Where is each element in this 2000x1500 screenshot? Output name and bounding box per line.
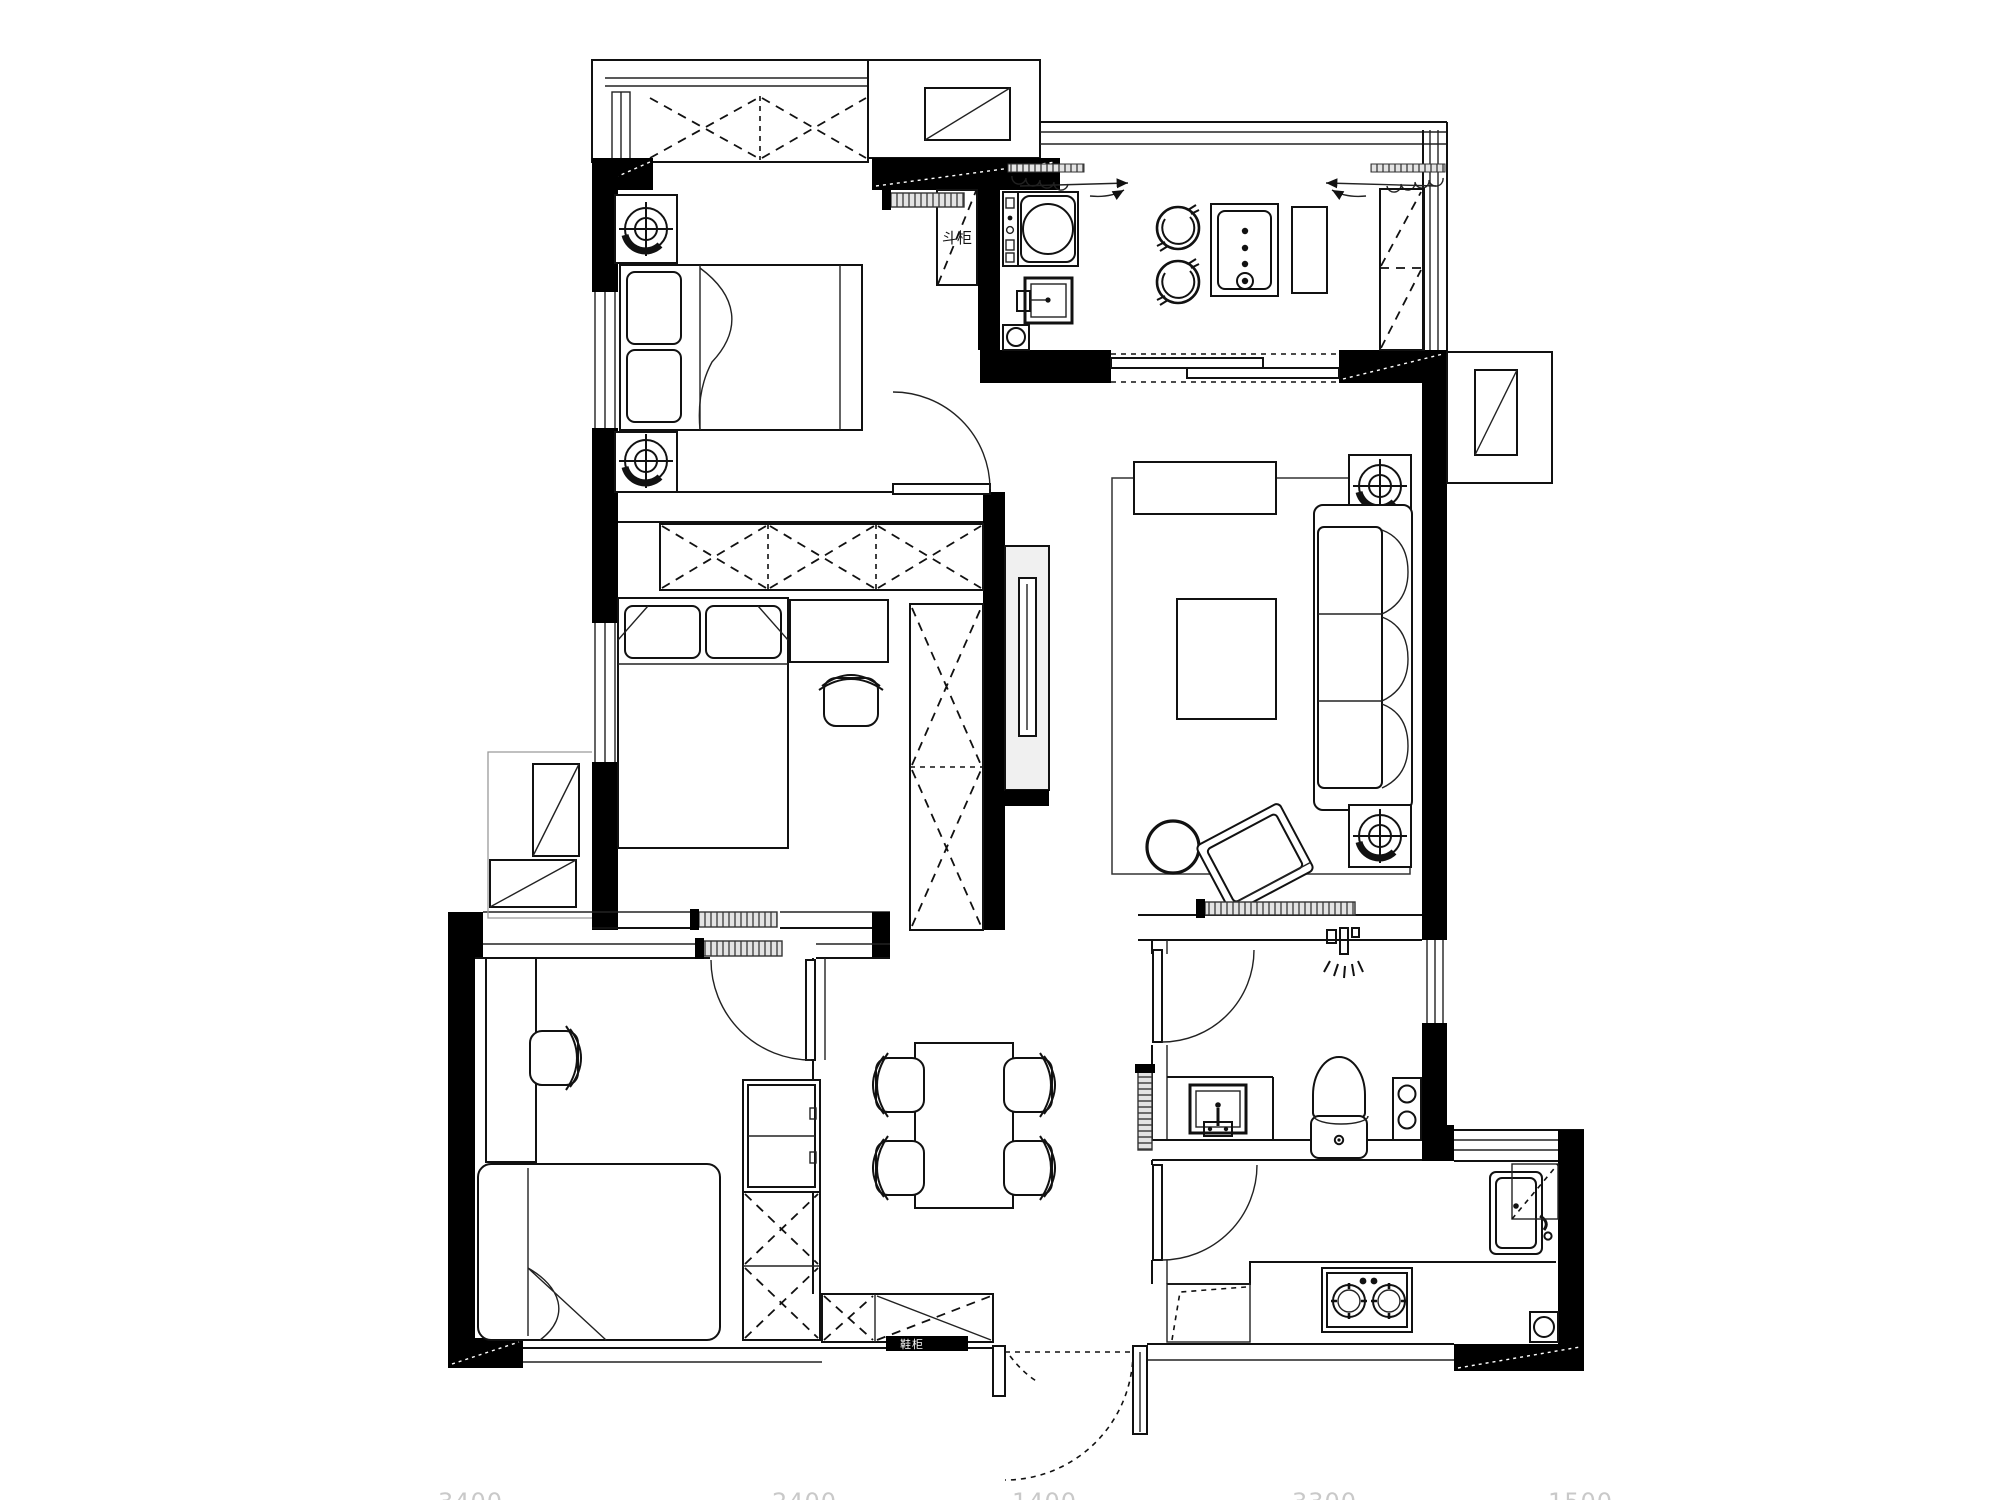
tv-console [1134, 462, 1276, 514]
pot-2 [1157, 259, 1199, 305]
bedroom2-sliding-door [690, 909, 782, 959]
dining-area [873, 899, 1355, 1208]
dim-3: 1400 [1012, 1488, 1077, 1500]
nightstand-north [615, 195, 677, 263]
bedroom2-side-wardrobe [910, 604, 983, 930]
floor-drain-balcony [1003, 325, 1029, 350]
shoe-cabinet: 鞋柜 [822, 1294, 993, 1351]
nightstand-south [615, 432, 677, 492]
single-bed [478, 1164, 720, 1340]
wall-corridor [983, 590, 1005, 930]
bed2-double-bed [618, 598, 788, 848]
shoe-cabinet-label: 鞋柜 [900, 1337, 924, 1351]
bedroom2-window [592, 623, 618, 762]
entry-door-dashed [1005, 1352, 1133, 1480]
kitchen [1153, 1164, 1558, 1342]
gas-hob [1322, 1268, 1412, 1332]
kitchen-sink [1490, 1172, 1552, 1254]
kitchen-door [1153, 1165, 1257, 1260]
study-desk [486, 958, 536, 1162]
double-bed [620, 265, 862, 430]
ac-platform-ne [1447, 352, 1552, 483]
towel-shelf [1393, 1078, 1421, 1140]
armchair [1196, 802, 1315, 913]
east-wall-bath [1422, 1023, 1447, 1125]
bathroom-door [1153, 950, 1254, 1042]
range-flue-box [868, 60, 1040, 158]
living-room [1112, 455, 1412, 914]
dim-4: 3300 [1292, 1488, 1357, 1500]
floor-plan-page: 斗柜 [0, 0, 2000, 1500]
sliding-door-balcony-niche [882, 190, 964, 210]
study-room [478, 958, 820, 1340]
bedroom1-window [592, 292, 618, 428]
vanity-basin [1167, 1077, 1273, 1140]
bookshelf [743, 1080, 820, 1192]
bedroom1-top-closet [592, 60, 868, 162]
entry-vestibule [993, 1346, 1147, 1434]
bathroom [1153, 928, 1421, 1158]
study-low-cabinet [743, 1192, 820, 1340]
bedroom1-door [893, 392, 990, 494]
side-table-south [1349, 805, 1411, 867]
tall-cabinet [1292, 207, 1327, 293]
floor-plan-drawing: 斗柜 [0, 0, 2000, 1500]
bedroom2-top-wardrobe [660, 524, 983, 590]
water-heater [1211, 204, 1278, 296]
curtain-east [1326, 164, 1445, 196]
coffee-table [1177, 599, 1276, 719]
dining-chair-2 [873, 1136, 924, 1200]
desk2-chair [819, 675, 883, 726]
dimension-labels: 3400 2400 1400 3300 1500 [438, 1488, 1613, 1500]
sliding-door-living-dining [1196, 899, 1355, 918]
bedroom2 [488, 524, 983, 959]
tv-feature-wall [1005, 546, 1049, 806]
bedroom1: 斗柜 [615, 190, 990, 494]
sofa-three-seat [1314, 505, 1412, 810]
study-chair [530, 1026, 581, 1090]
bathroom-window [1422, 940, 1447, 1023]
washing-machine [1003, 192, 1078, 266]
dim-2: 2400 [772, 1488, 837, 1500]
east-wall-living [1422, 383, 1447, 940]
dining-chair-3 [1004, 1053, 1055, 1117]
dresser-label: 斗柜 [942, 229, 972, 247]
base-cabinet-dashed [1167, 1284, 1250, 1342]
desk2 [790, 600, 888, 662]
south-wall-kitchen [1454, 1344, 1584, 1371]
east-wall-kitchen [1558, 1130, 1584, 1371]
balcony-sliding-window [1111, 354, 1339, 382]
shower-mixer [1324, 928, 1363, 978]
pot-1 [1157, 205, 1199, 251]
west-wall [592, 158, 618, 930]
wall-balcony-sw [980, 350, 1111, 383]
utility-balcony [1003, 164, 1445, 382]
dining-table [915, 1043, 1013, 1208]
west-wall-study [448, 930, 475, 1353]
balcony-pier [978, 190, 1000, 350]
round-stool [1147, 821, 1199, 873]
dim-1: 3400 [438, 1488, 503, 1500]
balcony-east-closet [1380, 189, 1424, 350]
toilet [1311, 1057, 1368, 1158]
dining-chair-1 [873, 1053, 924, 1117]
floor-drain-kitchen [1530, 1312, 1558, 1342]
laundry-sink [1017, 278, 1072, 323]
dim-5: 1500 [1548, 1488, 1613, 1500]
study-door [711, 960, 815, 1060]
wardrobe-cross-panels [650, 96, 866, 160]
entry-zone: 鞋柜 [822, 1294, 1133, 1480]
ac-ledge-west [488, 752, 592, 918]
dining-chair-4 [1004, 1136, 1055, 1200]
sliding-panel-kitchen-wall [1135, 1064, 1155, 1150]
